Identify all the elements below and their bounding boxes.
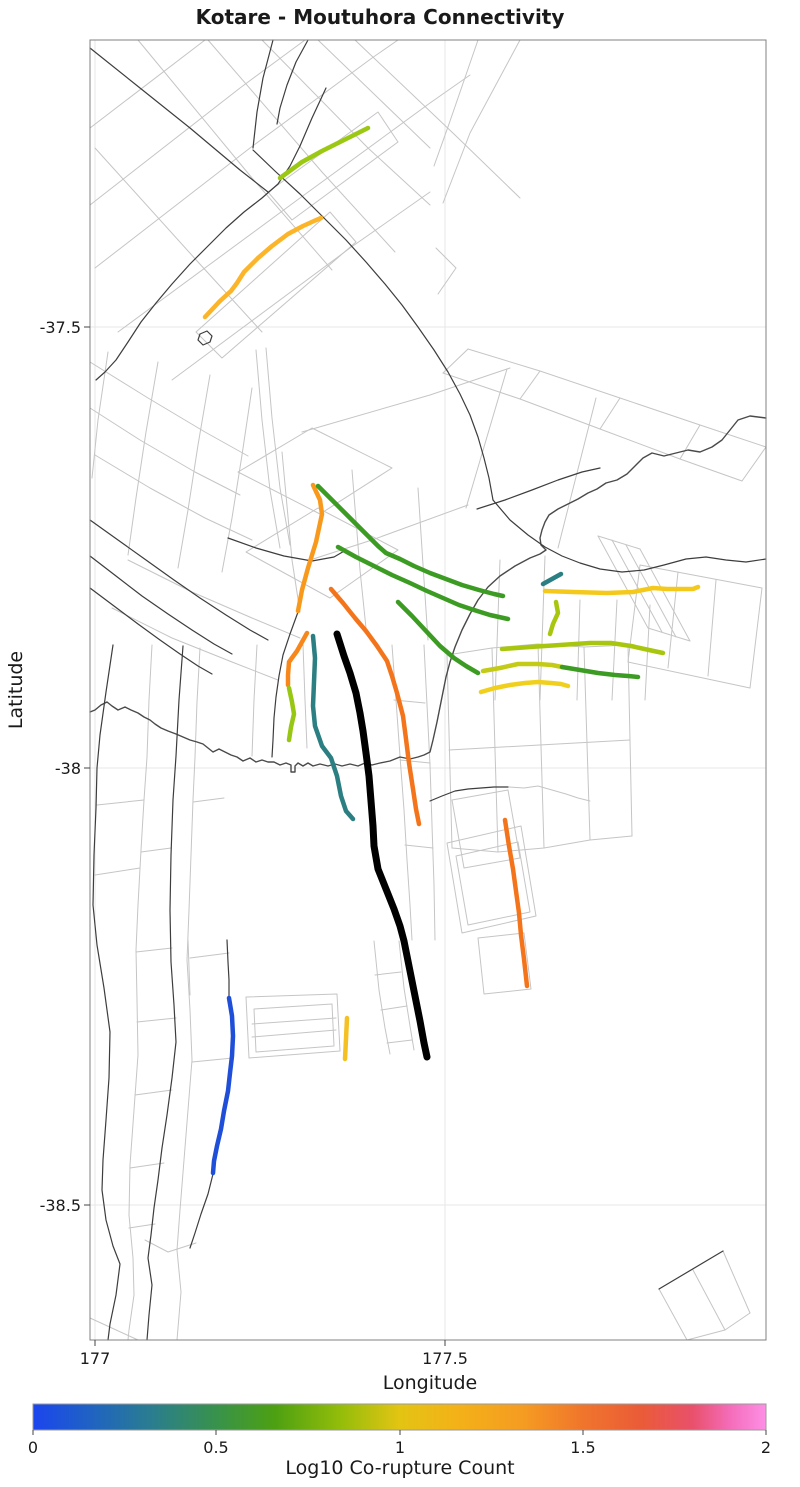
fault-mesh-outline [282,452,300,612]
axis-ticks [84,327,445,1346]
fault-mesh-outline [509,786,590,801]
fault-mesh-outline [95,455,252,540]
fault-mesh-outline [680,425,700,459]
yellow-green-fault-east-mid [483,664,562,671]
fault-mesh-outline [468,349,766,447]
colorbar-tick-label: 1.5 [570,1438,595,1457]
fault-mesh-outline [190,953,229,958]
fault-mesh-outline [252,645,257,756]
fault-mesh-outline [145,1240,196,1252]
fault-mesh-outline [266,348,290,545]
gridlines [90,40,766,1340]
y-tick-label: -38.5 [40,1196,81,1215]
fault-mesh-outline [310,505,468,560]
colorbar-tick-label: 1 [395,1438,405,1457]
fault-mesh-outline [138,40,332,270]
lime-fault-mid-small [289,688,294,740]
fault-mesh-outline [130,1163,164,1168]
fault-mesh-outline [355,40,520,198]
fault-trace [90,48,268,192]
axis-tick-labels: 177177.5-37.5-38-38.5 [40,318,468,1368]
blue-fault-south [213,998,233,1173]
amber-fault-small-vert [345,1018,347,1059]
highlighted-fault-segments [205,128,698,1173]
fault-mesh-outline [90,1318,138,1340]
fault-mesh-outline [177,648,200,1340]
page-title: Kotare - Moutuhora Connectivity [196,5,565,29]
fault-mesh-outline [128,560,300,638]
fault-mesh-outline [136,948,172,952]
fault-mesh-outline [452,836,632,852]
y-tick-label: -38 [55,759,81,778]
fault-mesh-outlines [90,40,766,1340]
fault-trace [477,468,600,509]
fault-mesh-outline [90,40,205,128]
orange-fault-central [331,589,419,824]
fault-mesh-outline [302,368,510,432]
fault-traces [90,40,766,1340]
fault-mesh-outline [95,868,140,875]
colorbar-tick-label: 2 [761,1438,771,1457]
fault-trace [493,500,766,572]
fault-mesh-outline [246,994,340,1058]
fault-mesh-outline [449,740,630,750]
fault-trace [228,538,346,561]
fault-mesh-outline [492,648,498,852]
teal-fault-tip-ne [543,574,561,584]
y-axis-label: Latitude [5,651,27,729]
fault-mesh-outline [628,565,762,688]
yellow-green-fault-north [280,128,368,178]
fault-mesh-outline [659,1289,687,1340]
fault-mesh-outline [374,941,390,1054]
fault-mesh-outline [708,580,716,676]
fault-mesh-outline [137,1018,176,1022]
fault-mesh-outline [97,800,144,805]
fault-trace [253,40,273,148]
fault-mesh-outline [268,112,398,220]
fault-mesh-outline [584,647,590,840]
fault-mesh-outline [381,1006,407,1010]
gold-fault-east-short [481,682,568,692]
x-axis-label: Longitude [383,1372,478,1394]
fault-trace [198,331,212,345]
fault-mesh-outline [742,447,766,481]
fault-mesh-outline [90,362,248,456]
fault-mesh-outline [95,148,262,332]
fault-mesh-outline [693,1270,725,1330]
fault-mesh-outline [352,470,366,628]
fault-mesh-outline [238,428,392,514]
fault-mesh-outline [612,600,617,700]
fault-mesh-outline [400,760,430,763]
fault-mesh-outline [128,645,152,1340]
fault-mesh-outline [303,645,307,748]
fault-mesh-outline [252,1030,336,1037]
fault-mesh-outline [447,655,452,848]
fault-mesh-outline [723,1251,750,1313]
olive-fault-east-long [502,643,663,653]
fault-mesh-outline [424,645,435,940]
fault-mesh-outline [668,572,678,668]
fault-trace [272,612,298,757]
green-fault-long-3 [398,602,478,673]
fault-mesh-outline [90,408,240,495]
fault-mesh-outline [135,1090,172,1095]
fault-mesh-outline [95,40,398,268]
green-fault-long-1 [318,486,503,596]
fault-mesh-outline [600,398,620,429]
colorbar-ticks: 00.511.52 [28,1430,771,1457]
fault-mesh-outline [118,75,470,332]
colorbar-tick-label: 0 [28,1438,38,1457]
fault-mesh-outline [418,488,428,640]
connectivity-map: Kotare - Moutuhora Connectivity 177177.5… [0,0,800,1487]
fault-mesh-outline [495,560,500,700]
fault-trace [190,1174,213,1248]
fault-trace [227,940,229,996]
amber-fault-north [205,218,321,317]
colorbar [33,1404,766,1430]
plot-border [90,40,766,1340]
fault-mesh-outline [254,1004,334,1052]
fault-mesh-outline [141,848,171,852]
colorbar-label: Log10 Co-rupture Count [285,1457,514,1479]
fault-mesh-outline [375,972,401,975]
x-tick-label: 177 [80,1349,111,1368]
fault-mesh-outline [436,248,456,294]
fault-mesh-outline [208,40,395,252]
fault-mesh-outline [128,362,158,555]
fault-mesh-outline [405,845,433,848]
yellow-green-small-vert [550,602,558,634]
gold-fault-east [545,587,698,593]
fault-mesh-outline [172,192,430,380]
fault-trace [93,645,120,1340]
y-tick-label: -37.5 [40,318,81,337]
x-tick-label: 177.5 [422,1349,468,1368]
fault-mesh-outline [252,1018,336,1024]
fault-mesh-outline [443,40,520,203]
fault-mesh-outline [178,375,210,568]
fault-mesh-outline [577,600,580,700]
colorbar-tick-label: 0.5 [203,1438,228,1457]
fault-mesh-outline [90,40,305,205]
fault-mesh-outline [645,605,650,700]
figure-container: Kotare - Moutuhora Connectivity 177177.5… [0,0,800,1487]
green-fault-east-mid [562,667,638,677]
fault-mesh-outline [192,1058,233,1062]
fault-trace [253,150,493,500]
fault-mesh-outline [540,556,545,700]
fault-mesh-outline [129,1224,155,1228]
fault-mesh-outline [193,798,224,802]
fault-mesh-outline [466,369,507,508]
fault-mesh-outline [434,40,478,166]
fault-mesh-outline [520,371,540,399]
fault-trace [659,1251,723,1289]
fault-mesh-outline [387,1040,412,1043]
